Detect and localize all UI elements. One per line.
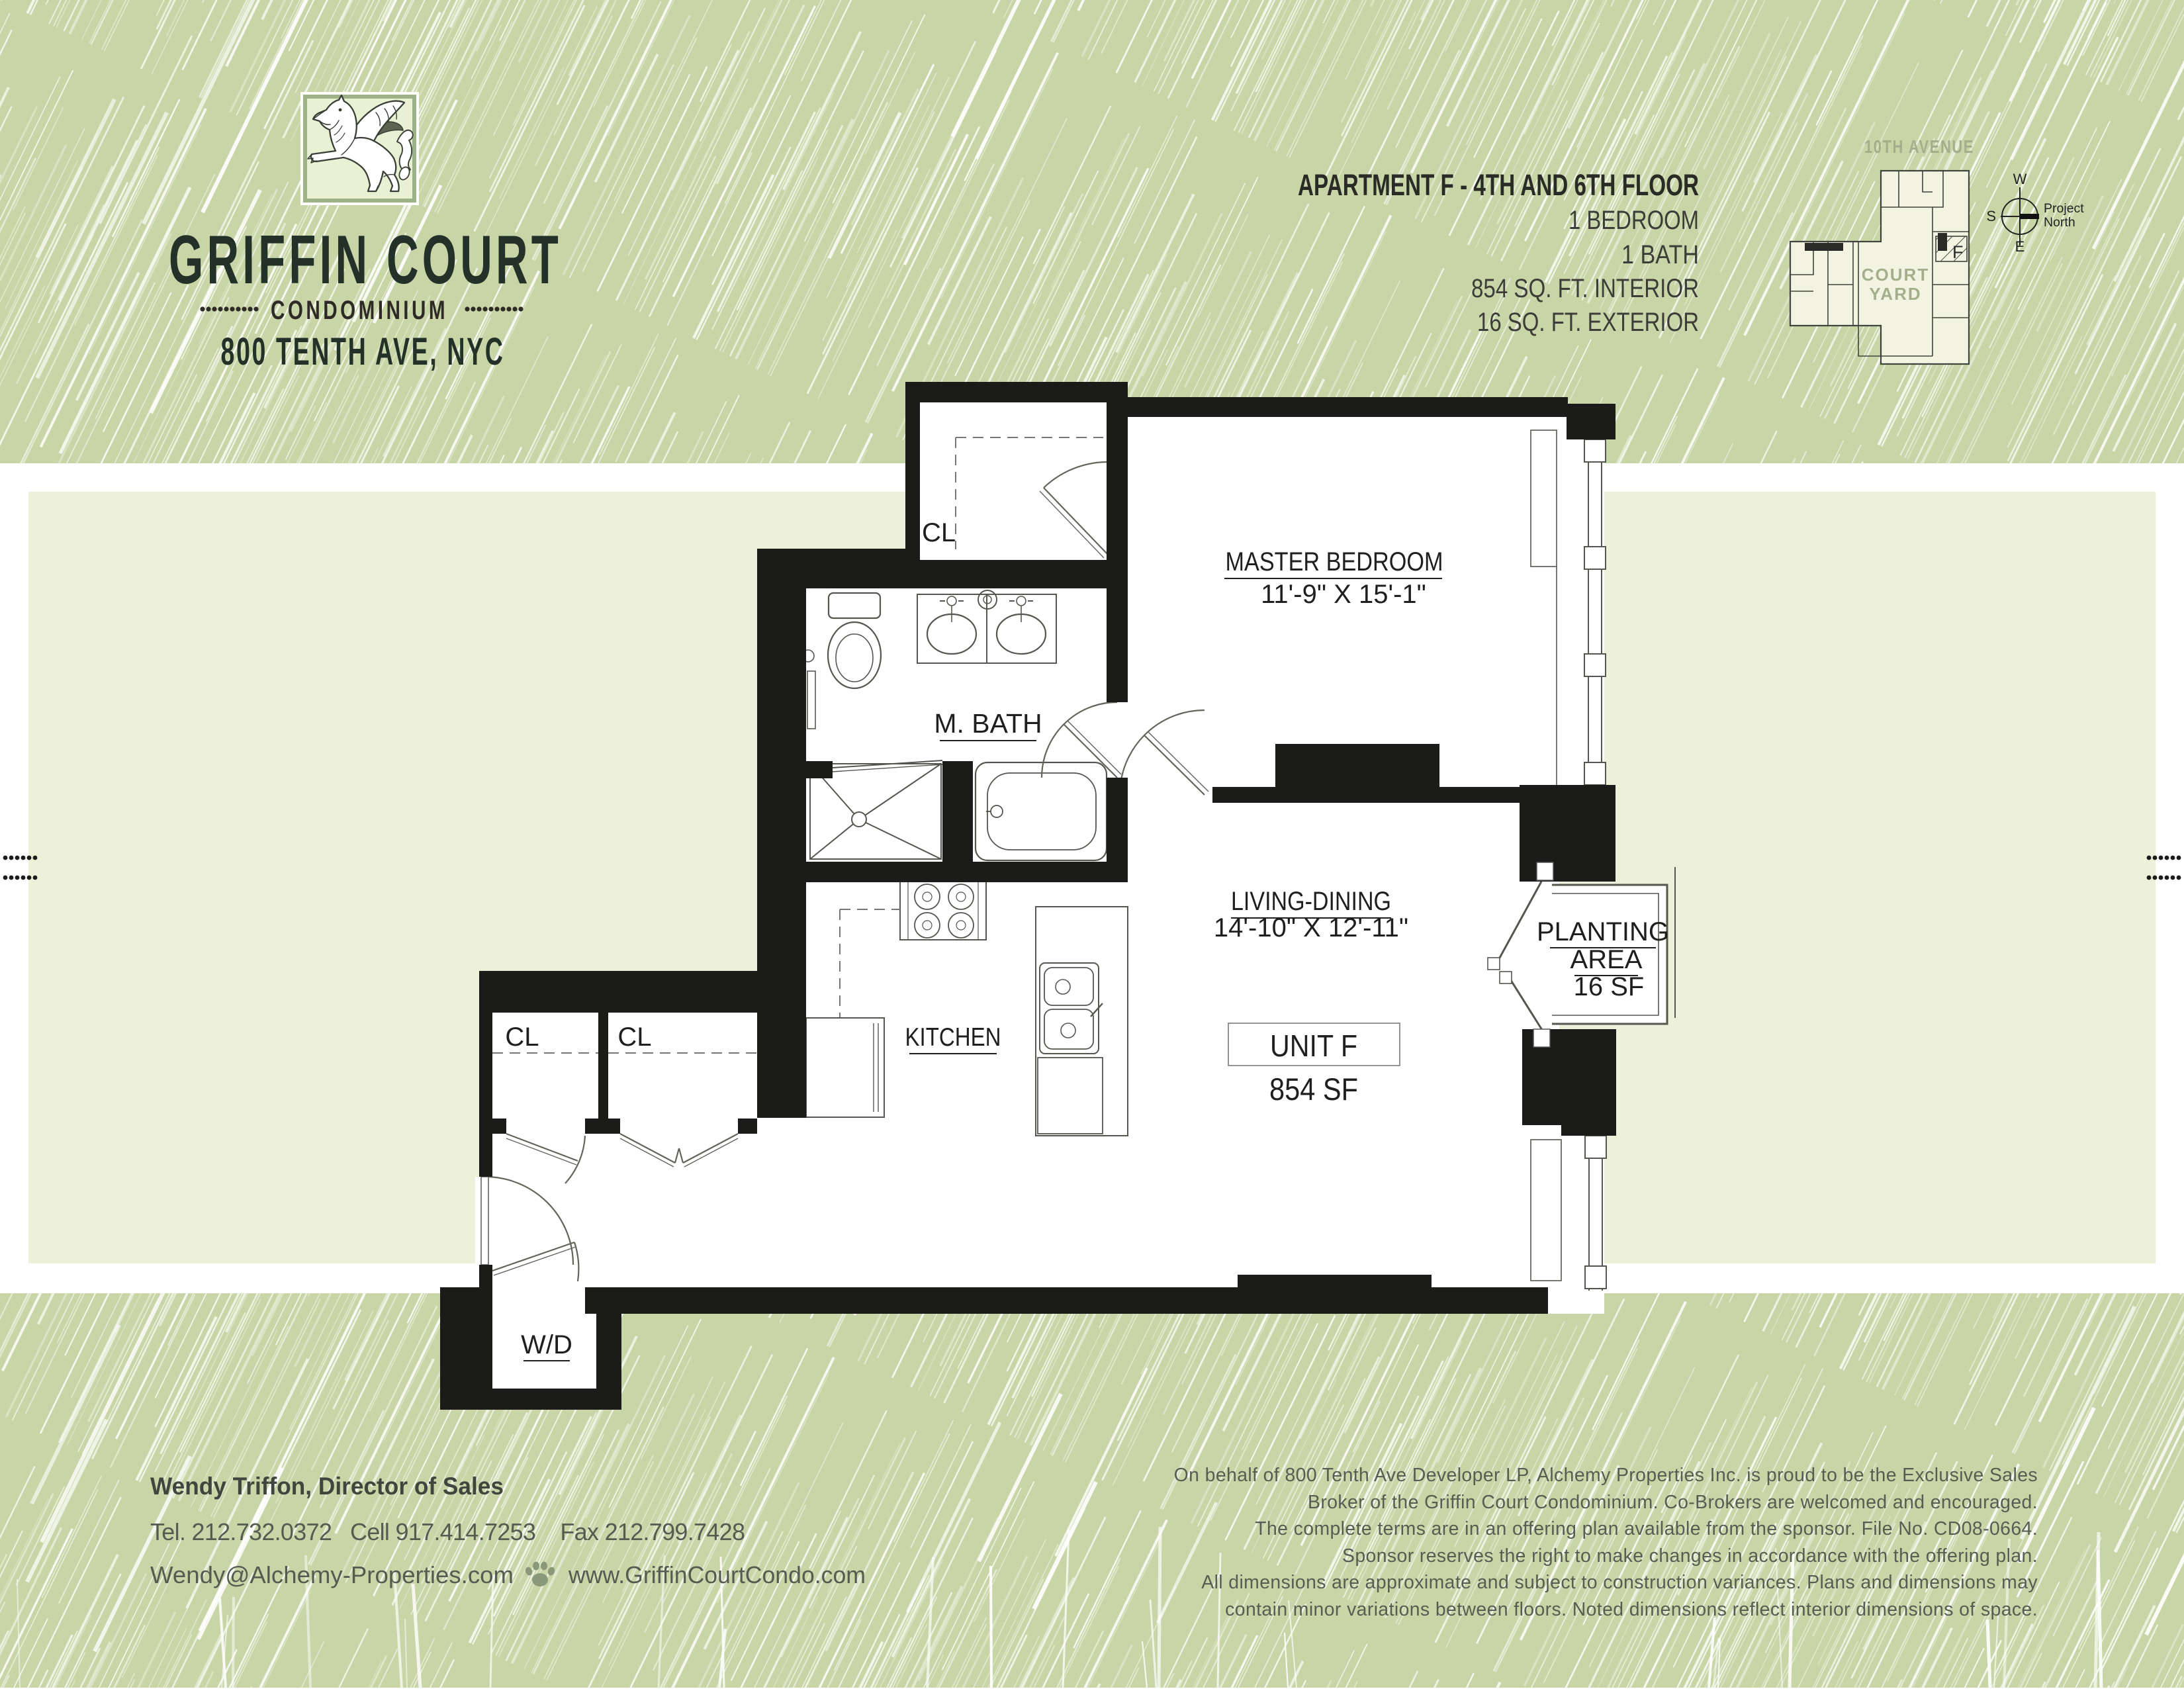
svg-text:CL: CL	[922, 518, 956, 547]
svg-text:W/D: W/D	[521, 1330, 572, 1359]
svg-text:COURT: COURT	[1862, 265, 1929, 285]
svg-text:16 SF: 16 SF	[1574, 972, 1645, 1001]
svg-text:On behalf of 800 Tenth Ave Dev: On behalf of 800 Tenth Ave Developer LP,…	[1174, 1465, 2038, 1486]
svg-text:14'-10" X 12'-11": 14'-10" X 12'-11"	[1214, 913, 1408, 942]
svg-text:Project: Project	[2044, 201, 2084, 216]
svg-text:Wendy@Alchemy-Properties.com: Wendy@Alchemy-Properties.com	[150, 1561, 514, 1588]
svg-text:GRIFFIN COURT: GRIFFIN COURT	[169, 222, 562, 298]
svg-text:MASTER BEDROOM: MASTER BEDROOM	[1226, 547, 1443, 576]
svg-text:1 BATH: 1 BATH	[1621, 240, 1699, 269]
svg-text:Wendy Triffon, Director of Sal: Wendy Triffon, Director of Sales	[150, 1473, 504, 1500]
svg-text:S: S	[1986, 208, 1996, 224]
svg-text:KITCHEN: KITCHEN	[905, 1023, 1001, 1052]
svg-text:800 TENTH AVE, NYC: 800 TENTH AVE, NYC	[221, 330, 505, 373]
svg-text:Tel. 212.732.0372 Cell 917.4: Tel. 212.732.0372 Cell 917.414.7253 Fax …	[150, 1518, 745, 1545]
svg-text:www.GriffinCourtCondo.com: www.GriffinCourtCondo.com	[568, 1561, 866, 1588]
svg-text:E: E	[2015, 238, 2025, 255]
svg-text:UNIT F: UNIT F	[1270, 1028, 1357, 1063]
svg-text:PLANTING: PLANTING	[1537, 917, 1669, 946]
svg-text:The complete terms are in an o: The complete terms are in an offering pl…	[1255, 1518, 2038, 1539]
svg-text:F: F	[1952, 242, 1964, 262]
svg-text:LIVING-DINING: LIVING-DINING	[1231, 887, 1391, 916]
svg-text:APARTMENT F - 4TH AND 6TH FLOO: APARTMENT F - 4TH AND 6TH FLOOR	[1298, 168, 1699, 202]
svg-text:contain minor variations betwe: contain minor variations between floors.…	[1225, 1599, 2038, 1620]
svg-text:10TH AVENUE: 10TH AVENUE	[1864, 136, 1974, 157]
svg-text:North: North	[2044, 215, 2075, 230]
svg-text:W: W	[2013, 171, 2027, 187]
svg-text:16 SQ. FT. EXTERIOR: 16 SQ. FT. EXTERIOR	[1477, 308, 1699, 337]
svg-text:CL: CL	[505, 1023, 539, 1052]
svg-text:854 SF: 854 SF	[1269, 1072, 1358, 1107]
svg-text:854 SQ. FT. INTERIOR: 854 SQ. FT. INTERIOR	[1471, 274, 1699, 303]
svg-text:CONDOMINIUM: CONDOMINIUM	[271, 296, 448, 325]
svg-text:Broker of the Griffin Court Co: Broker of the Griffin Court Condominium.…	[1308, 1492, 2038, 1513]
svg-text:11'-9" X 15'-1": 11'-9" X 15'-1"	[1261, 580, 1426, 609]
svg-text:YARD: YARD	[1869, 284, 1921, 304]
svg-text:Sponsor reserves the right to: Sponsor reserves the right to make chang…	[1342, 1545, 2038, 1567]
svg-text:M. BATH: M. BATH	[934, 708, 1042, 739]
svg-text:AREA: AREA	[1570, 945, 1643, 974]
svg-text:All dimensions are approximate: All dimensions are approximate and subje…	[1201, 1572, 2038, 1593]
svg-text:1 BEDROOM: 1 BEDROOM	[1569, 206, 1699, 235]
svg-text:CL: CL	[617, 1023, 651, 1052]
